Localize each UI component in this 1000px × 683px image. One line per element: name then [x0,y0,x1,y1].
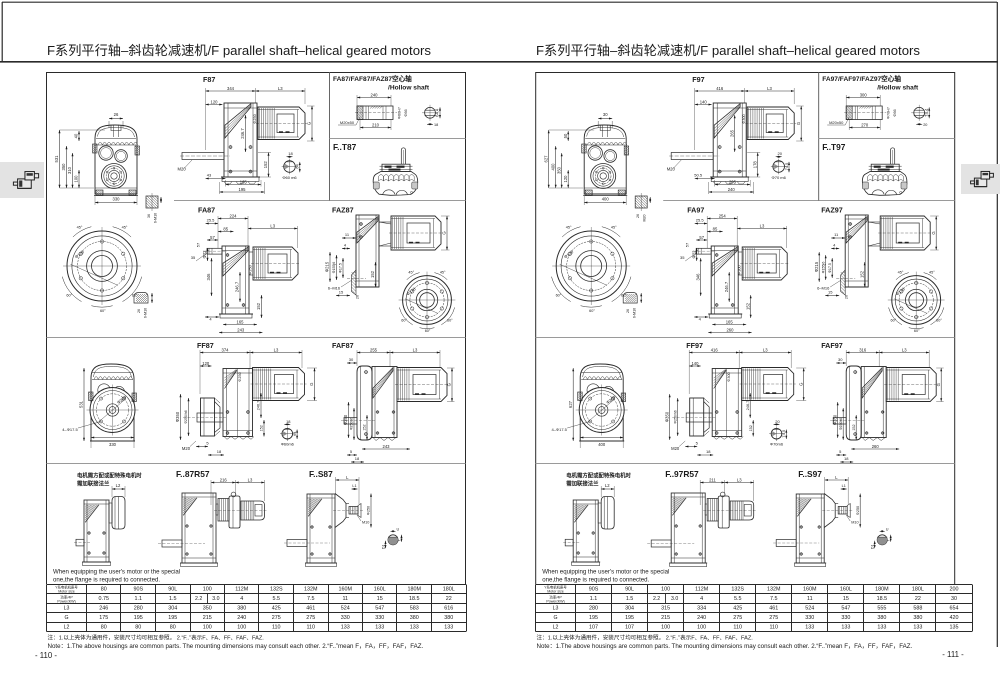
svg-text:FF87: FF87 [197,341,214,350]
svg-text:Note：1.The above housings are: Note：1.The above housings are common par… [48,643,424,650]
svg-text:F系列平行轴–斜齿轮减速机/F parallel shaft: F系列平行轴–斜齿轮减速机/F parallel shaft–helical g… [536,43,920,58]
svg-text:90S: 90S [133,587,143,593]
svg-text:26: 26 [626,309,630,313]
svg-text:240: 240 [728,187,736,192]
svg-text:Φ22: Φ22 [691,250,696,259]
svg-text:18: 18 [288,151,293,156]
svg-text:555: 555 [877,606,886,612]
svg-text:64: 64 [295,164,300,169]
svg-text:FF97: FF97 [686,341,703,350]
svg-text:25.5: 25.5 [696,218,705,223]
svg-text:/Hollow shaft: /Hollow shaft [877,85,919,92]
svg-text:F系列平行轴–斜齿轮减速机/F parallel shaft: F系列平行轴–斜齿轮减速机/F parallel shaft–helical g… [47,43,431,58]
svg-text:112M: 112M [235,587,249,593]
svg-text:FAZ97: FAZ97 [821,206,843,215]
svg-text:4: 4 [700,596,703,602]
svg-text:M20x50: M20x50 [829,120,844,125]
svg-text:15: 15 [843,596,849,602]
svg-text:11: 11 [807,596,813,602]
svg-text:FA87: FA87 [198,206,215,215]
svg-text:Φ70H7: Φ70H7 [887,107,891,119]
svg-text:160M: 160M [339,587,353,593]
svg-text:Φ300: Φ300 [738,265,742,274]
svg-text:35: 35 [680,255,685,260]
svg-text:260: 260 [872,444,880,449]
svg-text:60°: 60° [100,309,106,313]
svg-text:60°: 60° [914,329,920,333]
svg-text:需加联接法兰: 需加联接法兰 [77,480,110,488]
svg-text:25.5: 25.5 [207,218,216,223]
svg-text:246.7: 246.7 [257,401,261,411]
svg-text:30: 30 [951,596,957,602]
svg-text:Φ17.5: Φ17.5 [339,263,343,273]
svg-text:45°: 45° [566,225,572,229]
svg-text:F..87R57: F..87R57 [176,469,210,479]
svg-text:60°: 60° [401,318,407,322]
svg-text:461: 461 [769,606,778,612]
svg-text:Φ300: Φ300 [727,372,731,381]
svg-text:26: 26 [356,295,360,299]
svg-text:L2: L2 [605,483,610,488]
svg-text:275: 275 [733,615,742,621]
svg-text:133: 133 [444,625,453,631]
svg-text:Φ250h6: Φ250h6 [350,418,354,431]
svg-text:216: 216 [220,477,228,482]
svg-text:100: 100 [74,175,79,183]
svg-text:110: 110 [272,625,281,631]
svg-text:246: 246 [99,606,108,612]
svg-text:FAZ87: FAZ87 [332,206,354,215]
svg-text:3.0: 3.0 [212,596,219,602]
svg-text:18: 18 [706,449,711,454]
svg-text:FAF97: FAF97 [821,341,843,350]
svg-text:注：1.以上壳体为通用件，安装尺寸均可相互参照。 2.“F: 注：1.以上壳体为通用件，安装尺寸均可相互参照。 2.“F..”表示F、FA、F… [48,634,265,642]
svg-text:60°: 60° [936,318,942,322]
svg-text:18: 18 [844,456,849,461]
svg-text:U: U [886,527,889,531]
svg-text:Φ155j6: Φ155j6 [821,262,825,274]
svg-text:74.5: 74.5 [781,429,786,438]
svg-text:531: 531 [54,155,59,163]
svg-text:80: 80 [101,625,107,631]
svg-text:210: 210 [372,122,380,127]
svg-text:Motor size: Motor size [58,590,75,594]
svg-text:416: 416 [711,347,719,352]
svg-text:18.5: 18.5 [409,596,420,602]
svg-text:280: 280 [589,606,598,612]
svg-text:215: 215 [661,615,670,621]
svg-text:L3: L3 [278,86,283,91]
svg-text:60°: 60° [589,309,595,313]
svg-text:243: 243 [383,444,391,449]
svg-text:Φ350: Φ350 [175,411,180,422]
svg-text:60°: 60° [890,318,896,322]
svg-text:195: 195 [625,615,634,621]
svg-text:Φ350: Φ350 [343,414,348,425]
svg-text:380: 380 [877,615,886,621]
svg-text:275: 275 [272,615,281,621]
svg-text:G: G [307,122,312,125]
svg-text:需加联接法兰: 需加联接法兰 [566,480,599,488]
svg-text:416: 416 [716,86,724,91]
svg-text:100: 100 [237,625,246,631]
svg-text:152: 152 [263,161,268,169]
svg-text:380: 380 [410,615,419,621]
svg-text:547: 547 [375,606,384,612]
svg-text:L2: L2 [64,625,70,631]
svg-text:M10: M10 [362,521,369,525]
svg-text:26: 26 [114,112,119,117]
svg-text:152: 152 [852,424,856,430]
svg-text:L3: L3 [274,347,279,352]
svg-text:350: 350 [203,606,212,612]
svg-text:80: 80 [170,625,176,631]
svg-text:80: 80 [101,587,107,593]
svg-text:654: 654 [949,606,958,612]
svg-text:L3: L3 [413,347,418,352]
svg-text:215: 215 [203,615,212,621]
svg-text:57: 57 [685,242,690,247]
svg-text:165: 165 [240,179,248,184]
svg-text:1.5: 1.5 [169,596,177,602]
svg-text:425: 425 [272,606,281,612]
svg-text:132M: 132M [767,587,781,593]
svg-text:45°: 45° [611,225,617,229]
svg-text:18: 18 [286,419,291,424]
svg-text:- 110 -: - 110 - [35,651,57,660]
svg-text:110: 110 [306,625,315,631]
svg-text:100: 100 [697,625,706,631]
svg-text:5.5: 5.5 [734,596,742,602]
svg-text:270: 270 [861,122,869,127]
svg-text:133: 133 [375,625,384,631]
svg-text:120: 120 [202,361,210,366]
svg-text:180L: 180L [912,587,924,593]
svg-text:Φ60m6: Φ60m6 [281,442,295,447]
svg-text:60°: 60° [425,329,431,333]
svg-text:G: G [553,615,557,621]
svg-text:110: 110 [769,625,778,631]
svg-text:133: 133 [877,625,886,631]
svg-text:627: 627 [568,400,573,408]
svg-text:18: 18 [217,449,222,454]
svg-text:140: 140 [691,361,699,366]
svg-text:L2: L2 [116,483,121,488]
svg-text:When equipping the user's moto: When equipping the user's motor or the s… [53,569,180,576]
svg-text:140: 140 [700,99,708,104]
svg-text:260: 260 [726,327,734,332]
svg-text:531: 531 [79,400,84,408]
svg-text:90S: 90S [589,587,599,593]
svg-text:4–Φ17.5: 4–Φ17.5 [62,427,78,432]
svg-text:M10: M10 [851,521,858,525]
svg-text:178: 178 [752,161,757,169]
svg-text:132S: 132S [731,587,744,593]
svg-text:Φ350: Φ350 [664,411,669,422]
svg-text:- 111 -: - 111 - [942,650,964,659]
svg-text:Φ70 m6: Φ70 m6 [772,175,787,180]
svg-text:5.5: 5.5 [273,596,281,602]
svg-text:524: 524 [805,606,814,612]
svg-text:F..S97: F..S97 [798,469,822,479]
svg-text:20: 20 [775,419,780,424]
svg-text:22: 22 [446,596,452,602]
svg-text:Φ66: Φ66 [893,109,897,116]
svg-text:346: 346 [206,273,211,281]
svg-text:4–Φ17.5: 4–Φ17.5 [551,427,567,432]
svg-text:165: 165 [237,319,245,324]
svg-text:L3: L3 [760,223,765,228]
svg-text:280: 280 [134,606,143,612]
svg-text:7.5: 7.5 [307,596,315,602]
svg-text:64.4: 64.4 [435,108,440,117]
svg-text:FAF87: FAF87 [332,341,354,350]
svg-text:133: 133 [841,625,850,631]
svg-text:80: 80 [135,625,141,631]
svg-text:120: 120 [211,99,219,104]
svg-text:2.2: 2.2 [653,596,660,602]
svg-text:26: 26 [636,214,640,218]
svg-text:45°: 45° [77,225,83,229]
svg-text:374: 374 [222,347,230,352]
svg-text:300: 300 [860,92,868,97]
svg-text:11: 11 [342,596,348,602]
svg-text:注：1.以上壳体为通用件，安装尺寸均可相互参照。 2.“F: 注：1.以上壳体为通用件，安装尺寸均可相互参照。 2.“F..”表示F、FA、F… [537,634,754,642]
svg-text:L1: L1 [352,484,356,488]
svg-text:Φ66: Φ66 [404,109,408,116]
svg-text:57: 57 [699,235,704,240]
svg-text:电机需方配或配特殊电机时: 电机需方配或配特殊电机时 [566,472,631,480]
svg-text:When equipping the user's moto: When equipping the user's motor or the s… [542,569,669,576]
svg-text:380: 380 [444,615,453,621]
svg-text:90L: 90L [625,587,634,593]
svg-text:133: 133 [341,625,350,631]
svg-text:420: 420 [949,615,958,621]
svg-text:Φ250: Φ250 [856,506,860,515]
svg-text:L3: L3 [737,477,742,482]
svg-text:F..T87: F..T87 [333,142,357,152]
svg-text:275: 275 [769,615,778,621]
svg-text:F97: F97 [692,75,704,84]
svg-text:330: 330 [109,442,117,447]
svg-text:L3: L3 [270,223,275,228]
svg-text:616: 616 [444,606,453,612]
svg-text:6-M16: 6-M16 [144,308,148,318]
svg-text:/Hollow shaft: /Hollow shaft [388,85,430,92]
svg-text:L3: L3 [64,606,70,612]
svg-text:152: 152 [745,302,750,310]
svg-text:one,the flange is required to: one,the flange is required to connected. [542,577,649,584]
svg-text:F..T97: F..T97 [822,142,846,152]
svg-text:L3: L3 [248,477,253,482]
svg-text:400: 400 [602,197,610,202]
svg-text:152: 152 [859,270,864,278]
svg-text:18: 18 [355,456,360,461]
svg-text:L3: L3 [767,86,772,91]
svg-text:L3: L3 [763,347,768,352]
svg-text:Φ22: Φ22 [202,250,207,259]
svg-text:400: 400 [598,442,606,447]
svg-text:112M: 112M [695,587,709,593]
svg-text:120: 120 [563,175,568,183]
svg-text:G: G [936,383,941,386]
svg-text:400: 400 [550,163,555,171]
svg-text:G: G [64,615,68,621]
svg-text:547: 547 [841,606,850,612]
svg-text:26: 26 [137,309,141,313]
svg-text:7.5: 7.5 [770,596,778,602]
svg-text:one,the flange is required to: one,the flange is required to connected. [53,577,160,584]
svg-text:265: 265 [729,129,734,137]
svg-text:85: 85 [713,226,718,231]
svg-text:Φ250: Φ250 [367,506,371,515]
svg-text:350: 350 [556,166,561,174]
svg-text:524: 524 [341,606,350,612]
svg-text:45°: 45° [440,271,446,275]
svg-text:4: 4 [240,596,243,602]
svg-text:246.7: 246.7 [240,128,245,139]
svg-text:Power(KW): Power(KW) [546,599,564,603]
svg-text:2.2: 2.2 [195,596,202,602]
svg-text:6-M16: 6-M16 [633,308,637,318]
svg-text:30: 30 [603,112,608,117]
svg-text:0.75: 0.75 [99,596,110,602]
svg-text:Motor size: Motor size [547,590,564,594]
svg-text:18.5: 18.5 [877,596,888,602]
svg-text:254: 254 [719,213,727,218]
svg-text:G: G [442,231,447,234]
svg-text:FA87/FAF87/FAZ87空心轴: FA87/FAF87/FAZ87空心轴 [333,74,412,83]
svg-text:195: 195 [134,615,143,621]
svg-text:Φ250h6: Φ250h6 [839,418,843,431]
svg-text:240: 240 [371,92,379,97]
svg-text:316: 316 [859,347,867,352]
svg-text:330: 330 [341,615,350,621]
svg-text:85: 85 [223,226,228,231]
svg-text:60°: 60° [447,318,453,322]
svg-text:90L: 90L [168,587,177,593]
svg-text:22: 22 [915,596,921,602]
svg-text:57: 57 [196,242,201,247]
svg-text:U: U [397,527,400,531]
svg-text:15: 15 [339,290,344,295]
svg-text:240: 240 [237,615,246,621]
svg-text:1.1: 1.1 [135,596,143,602]
svg-text:344: 344 [227,86,235,91]
svg-text:243: 243 [237,327,245,332]
svg-text:D1: D1 [871,544,875,549]
svg-text:100: 100 [661,587,670,593]
svg-text:G: G [796,122,801,125]
svg-text:100: 100 [661,625,670,631]
svg-text:132S: 132S [270,587,283,593]
svg-text:334: 334 [697,606,706,612]
svg-text:Φ250: Φ250 [249,265,253,274]
svg-text:L1: L1 [842,484,846,488]
svg-text:246.7: 246.7 [235,281,240,292]
svg-text:M20: M20 [671,446,680,451]
svg-text:35: 35 [191,255,196,260]
svg-text:Φ250/h6: Φ250/h6 [184,410,188,424]
svg-text:255: 255 [370,347,378,352]
svg-text:330: 330 [113,197,121,202]
svg-text:Φ300: Φ300 [742,114,746,123]
svg-text:64: 64 [292,431,297,436]
svg-text:315: 315 [661,606,670,612]
svg-text:Φ215: Φ215 [814,261,819,272]
svg-text:20: 20 [923,123,927,127]
svg-text:F..97R57: F..97R57 [665,469,699,479]
svg-text:Φ250: Φ250 [253,114,257,123]
svg-text:1.5: 1.5 [626,596,634,602]
svg-text:Power(KW): Power(KW) [57,599,75,603]
svg-text:Φ250: Φ250 [238,372,242,381]
svg-text:175: 175 [99,615,108,621]
svg-text:18: 18 [434,123,438,127]
svg-text:211: 211 [709,477,716,482]
svg-text:Φ70m6: Φ70m6 [770,442,784,447]
svg-text:30: 30 [838,357,843,362]
svg-text:330: 330 [805,615,814,621]
svg-text:Φ155j6: Φ155j6 [332,262,336,274]
svg-text:133: 133 [410,625,419,631]
svg-text:45°: 45° [898,271,904,275]
svg-text:195: 195 [239,187,247,192]
svg-text:310: 310 [67,166,72,174]
svg-text:380: 380 [913,615,922,621]
svg-text:100: 100 [203,625,212,631]
svg-text:43: 43 [207,173,212,178]
svg-text:135: 135 [949,625,958,631]
svg-text:G: G [447,383,452,386]
svg-text:L2: L2 [553,625,559,631]
svg-text:165: 165 [726,319,734,324]
svg-text:电机需方配或配特殊电机时: 电机需方配或配特殊电机时 [77,472,142,480]
svg-text:L3: L3 [902,347,907,352]
svg-text:FA97: FA97 [687,206,704,215]
svg-text:Φ350: Φ350 [832,414,837,425]
svg-text:30: 30 [349,357,354,362]
svg-text:G: G [798,383,803,386]
svg-text:50.5: 50.5 [694,173,703,178]
svg-text:26: 26 [845,295,849,299]
svg-text:180M: 180M [408,587,422,593]
svg-text:60°: 60° [66,294,72,298]
svg-text:F..S87: F..S87 [309,469,333,479]
svg-text:350: 350 [61,163,66,171]
svg-text:G: G [931,231,936,234]
svg-text:160M: 160M [803,587,817,593]
svg-text:195: 195 [168,615,177,621]
svg-text:36: 36 [147,214,151,218]
svg-text:M20: M20 [182,446,191,451]
svg-text:FA97/FAF97/FAZ97空心轴: FA97/FAF97/FAZ97空心轴 [822,74,901,83]
svg-text:Φ215: Φ215 [325,261,330,272]
svg-text:133: 133 [805,625,814,631]
svg-text:133: 133 [913,625,922,631]
svg-text:45°: 45° [122,225,128,229]
svg-text:275: 275 [306,615,315,621]
svg-text:Φ250/h6: Φ250/h6 [673,410,677,424]
svg-text:205: 205 [729,179,737,184]
svg-text:6-M16: 6-M16 [154,213,158,223]
svg-text:45°: 45° [929,271,935,275]
svg-text:304: 304 [625,606,634,612]
svg-text:G: G [309,383,314,386]
svg-text:3.0: 3.0 [671,596,678,602]
svg-text:583: 583 [410,606,419,612]
svg-text:20: 20 [777,151,782,156]
